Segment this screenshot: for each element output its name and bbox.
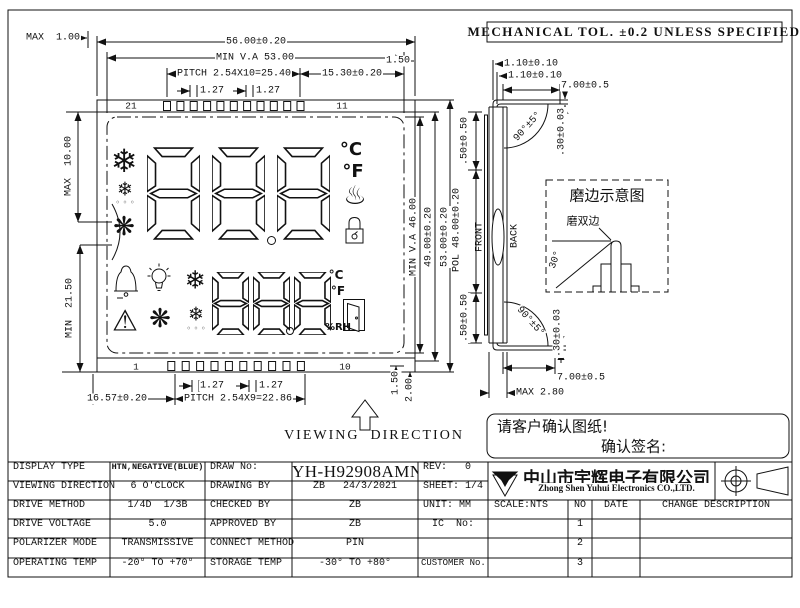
snowflake2-icon: ❄: [185, 268, 206, 293]
company-name-cn: 中山市宇辉电子有限公司: [518, 464, 715, 483]
fahrenheit-small-label: °F: [331, 285, 345, 297]
dim-127-bot-b: 1.27: [258, 381, 284, 392]
dim-min-2150: MIN 21.50: [65, 277, 76, 339]
table-cell-rev: REV: 0: [418, 462, 493, 481]
steam-icon: ♨: [343, 183, 366, 209]
rh-label: %RH: [325, 323, 351, 333]
table-cell-draw-no: DRAW No:: [205, 462, 297, 481]
table-cell-drive-method-value: 1/4D 1/3B: [110, 500, 205, 519]
table-cell-unit: UNIT: MM: [418, 500, 493, 519]
table-cell-drive-method: DRIVE METHOD: [8, 500, 115, 519]
table-cell-operating-temp-value: -20° TO +70°: [110, 558, 205, 577]
fan-icon: ❋: [113, 214, 135, 240]
table-cell-ic-no: IC No:: [418, 519, 488, 538]
dim-030-bot: .30±0.03: [553, 308, 564, 358]
bulb-icon: [148, 264, 171, 291]
viewing-direction-label: VIEWING DIRECTION: [284, 428, 464, 444]
confirm-line2: 确认签名:: [601, 440, 666, 455]
dim-pol: POL 48.00±0.20: [452, 187, 463, 273]
table-cell-connect-method: CONNECT METHOD: [205, 538, 297, 557]
table-cell-storage-temp: STORAGE TEMP: [205, 558, 297, 577]
celsius-big-label: °C: [340, 141, 362, 159]
back-side-label: BACK: [510, 223, 521, 249]
dim-53: 53.00±0.20: [440, 206, 451, 268]
table-cell-viewing-direction-value: 6 O'CLOCK: [110, 481, 205, 500]
pin-number-1: 1: [133, 362, 139, 373]
fahrenheit-big-label: °F: [342, 163, 363, 181]
dim-127-top-b: 1.27: [255, 86, 281, 97]
projection-symbol-icon: [721, 466, 788, 496]
table-cell-drive-voltage: DRIVE VOLTAGE: [8, 519, 115, 538]
table-cell-drive-voltage-value: 5.0: [110, 519, 205, 538]
fan2-icon: ❋: [149, 306, 171, 332]
table-cell-checked-by: CHECKED BY: [205, 500, 297, 519]
dim-max-1: MAX 1.00: [25, 33, 81, 44]
grind-sublabel: 磨双边: [567, 216, 600, 227]
dim-200: 2.00: [405, 377, 416, 403]
table-cell-polarizer-mode-value: TRANSMISSIVE: [110, 538, 205, 557]
table-cell-connect-method-value: PIN: [292, 538, 418, 557]
table-rev-row-2: 2: [568, 538, 592, 557]
bell-icon: [114, 266, 138, 298]
dim-width: 56.00±0.20: [225, 37, 287, 48]
table-cell-viewing-direction: VIEWING DIRECTION: [8, 481, 115, 500]
dim-va-height: MIN V.A 46.00: [409, 197, 420, 277]
dim-700-top: 7.00±0.5: [560, 81, 610, 92]
top-pins: [164, 102, 305, 111]
decimal-point-big: [268, 237, 276, 245]
dim-max-10: MAX 10.00: [64, 135, 75, 197]
lcd-outline: [97, 100, 415, 372]
dim-110-b: 1.10±0.10: [507, 71, 563, 82]
table-cell-approved-by-value: ZB: [292, 519, 418, 538]
break-symbol: [492, 209, 504, 265]
dim-050-top: .50±0.50: [460, 116, 471, 166]
dim-050-bot: .50±0.50: [460, 293, 471, 343]
table-cell-customer-no: CUSTOMER No.: [418, 558, 491, 577]
company-logo-icon: [493, 472, 517, 496]
celsius-small-label: °C: [329, 269, 344, 281]
table-header-date: DATE: [592, 500, 640, 519]
table-cell-operating-temp: OPERATING TEMP: [8, 558, 115, 577]
table-cell-drawing-by: DRAWING BY: [205, 481, 297, 500]
front-side-label: FRONT: [475, 221, 486, 253]
dim-127-bot-a: 1.27: [199, 381, 225, 392]
tolerance-note: MECHANICAL TOL. ±0.2 UNLESS SPECIFIED: [467, 24, 800, 40]
table-cell-checked-by-value: ZB: [292, 500, 418, 519]
grind-title: 磨边示意图: [569, 189, 644, 204]
defrost2-drips-icon: ◦ ◦ ◦: [186, 325, 205, 333]
pin-number-11: 11: [336, 101, 347, 112]
table-cell-display-type: DISPLAY TYPE: [8, 462, 115, 481]
dim-110-a: 1.10±0.10: [503, 59, 559, 70]
table-cell-approved-by: APPROVED BY: [205, 519, 297, 538]
dim-right-offset: 15.30±0.20: [321, 69, 383, 80]
dim-150-top: 1.50: [385, 56, 411, 67]
table-rev-row-3: 3: [568, 558, 592, 577]
pin-number-21: 21: [125, 101, 136, 112]
dim-max-280: MAX 2.80: [515, 388, 565, 399]
table-cell-polarizer-mode: POLARIZER MODE: [8, 538, 115, 557]
confirm-line1: 请客户确认图纸!: [497, 420, 608, 435]
dim-150-bot: 1.50: [391, 370, 402, 396]
dim-127-top-a: 1.27: [199, 86, 225, 97]
viewing-direction-arrow: [352, 400, 378, 430]
drawing-sheet: MECHANICAL TOL. ±0.2 UNLESS SPECIFIED MA…: [0, 0, 800, 608]
defrost2-snowflake-icon: ❄: [188, 306, 204, 325]
table-header-no: NO: [568, 500, 592, 519]
table-cell-part-number: YH-H92908AMN: [292, 462, 418, 481]
table-cell-sheet: SHEET: 1/4: [418, 481, 493, 500]
table-rev-row-1: 1: [568, 519, 592, 538]
dim-700-bot: 7.00±0.5: [556, 373, 606, 384]
bottom-pin-bend: [493, 343, 555, 350]
dim-49: 49.00±0.20: [424, 206, 435, 268]
snowflake-icon: ❄: [111, 145, 138, 177]
pin-number-10: 10: [339, 362, 350, 373]
dim-va-width: MIN V.A 53.00: [215, 53, 295, 64]
table-cell-display-type-value: HTN,NEGATIVE(BLUE): [110, 462, 205, 481]
lock-icon: [346, 218, 363, 244]
dim-pitch-bot: PITCH 2.54X9=22.86: [183, 394, 293, 405]
table-cell-drawing-by-value: ZB 24/3/2021: [292, 481, 418, 500]
seven-segment-digits: [147, 148, 331, 335]
defrost-drips-icon: ◦ ◦ ◦: [115, 199, 134, 207]
defrost-snowflake-icon: ❄: [117, 181, 133, 200]
dim-030-top: .30±0.03: [557, 107, 568, 157]
bottom-pins: [168, 362, 305, 371]
table-cell-scale: SCALE:NTS: [488, 500, 574, 519]
dim-pitch-top: PITCH 2.54X10=25.40: [176, 69, 292, 80]
warning-icon: ⚠: [112, 307, 138, 336]
table-header-change-description: CHANGE DESCRIPTION: [640, 500, 792, 519]
table-cell-storage-temp-value: -30° TO +80°: [292, 558, 418, 577]
top-pin-bend: [493, 100, 560, 107]
dim-1657: 16.57±0.20: [86, 394, 148, 405]
